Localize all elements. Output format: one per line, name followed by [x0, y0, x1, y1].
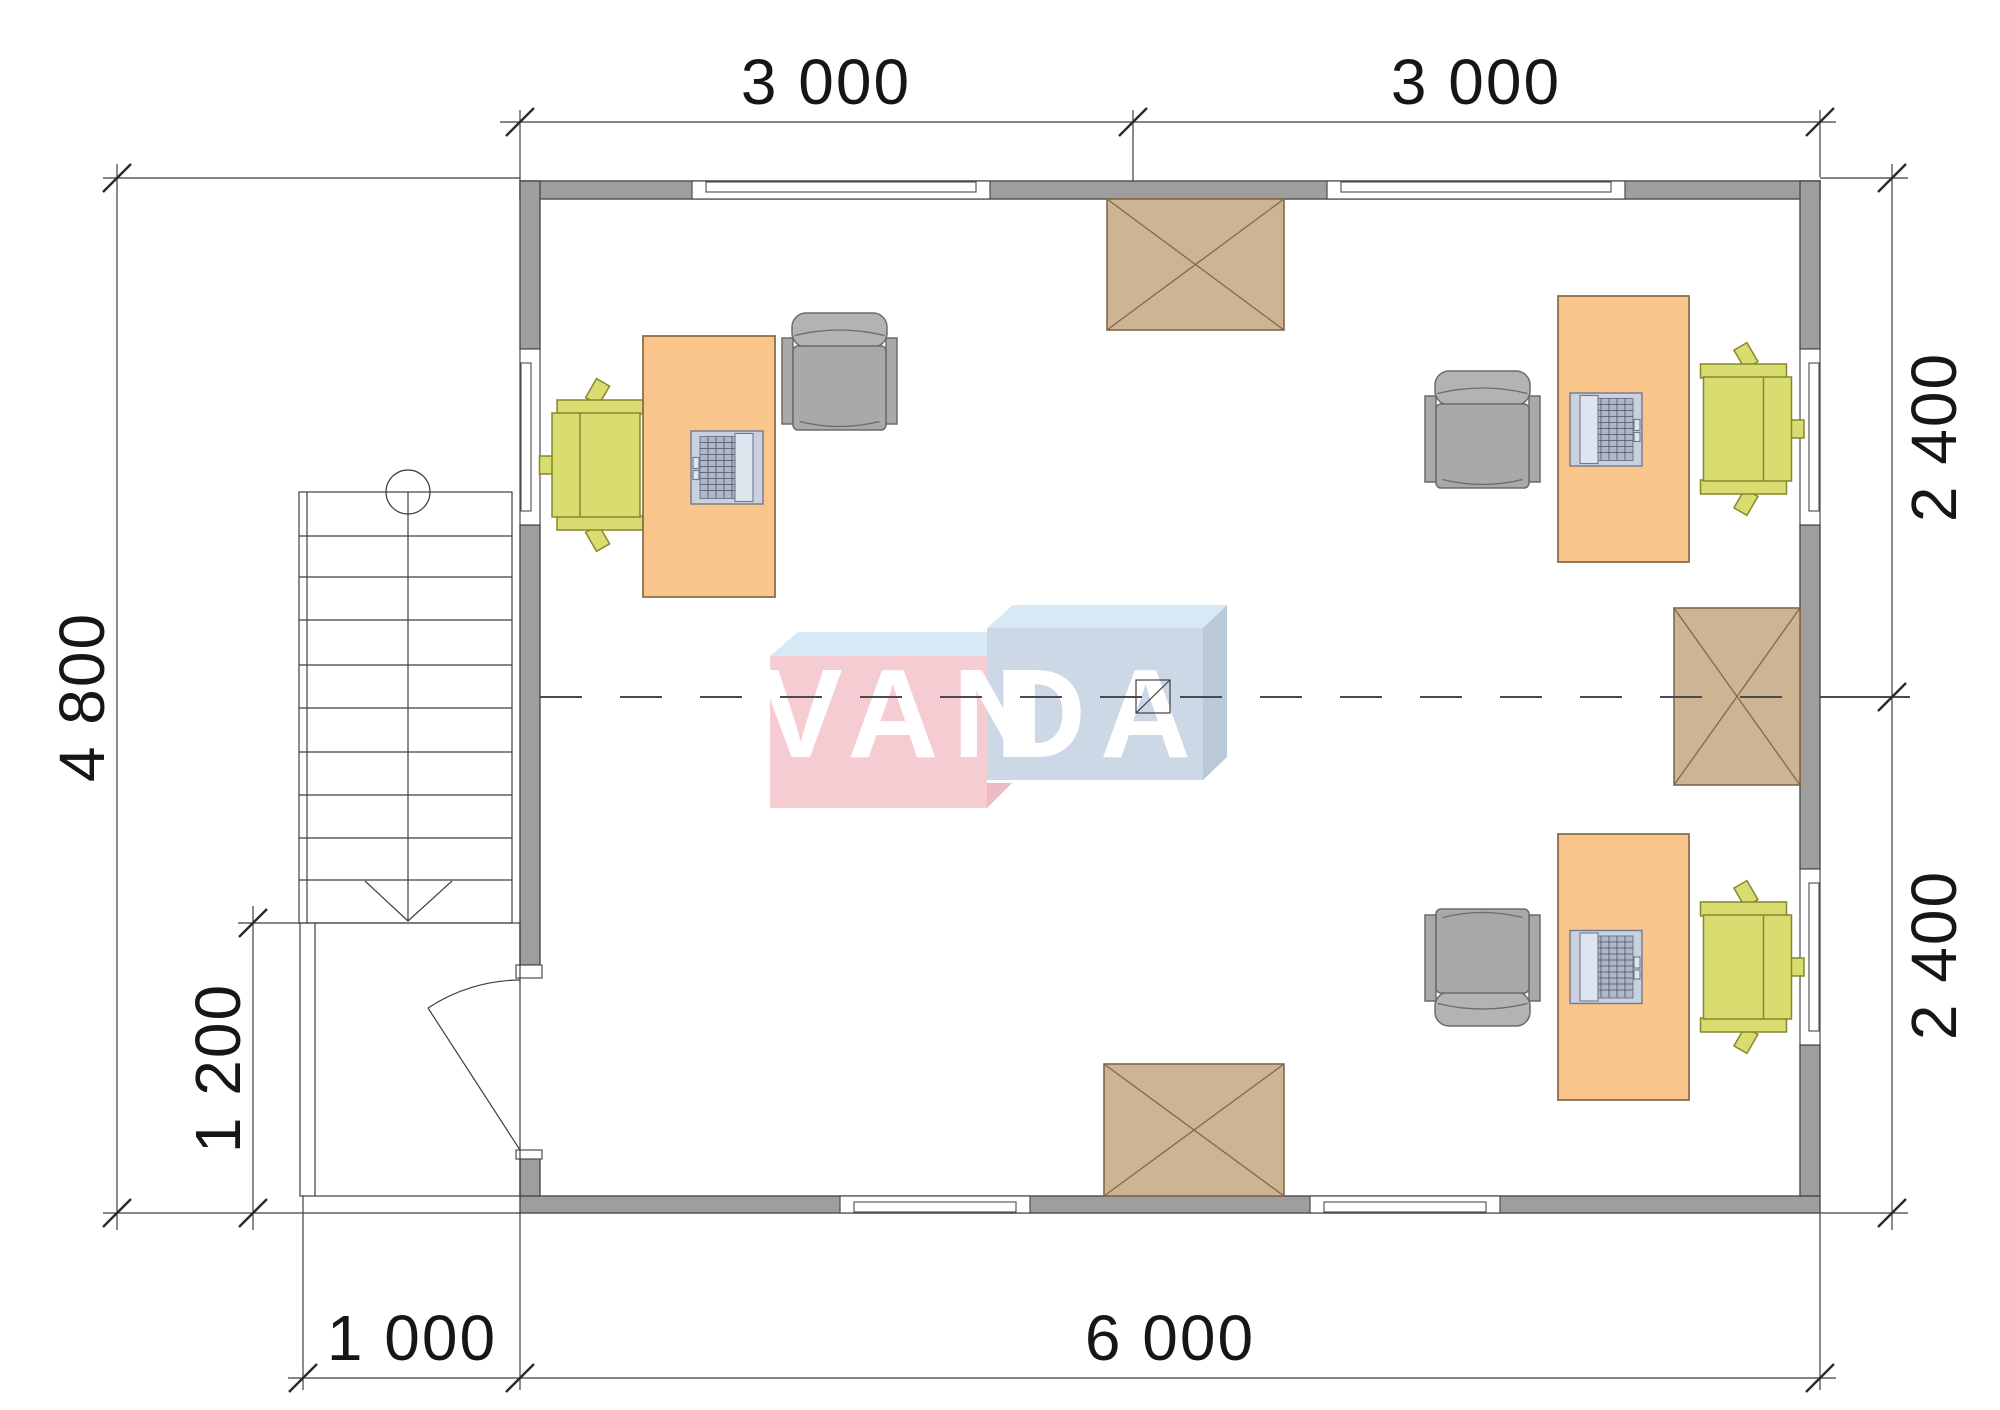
floor-plan-canvas: VAN DA	[0, 0, 2000, 1410]
workstation-3	[1425, 834, 1804, 1100]
laptop-3	[1570, 931, 1642, 1004]
dim-left: 4 800	[46, 164, 520, 1230]
crossed-box-top	[1107, 199, 1284, 330]
window-left	[520, 349, 540, 525]
armchair-1	[782, 313, 897, 430]
dim-bottom: 1 000 6 000	[288, 1196, 1836, 1392]
workstation-1	[540, 313, 898, 597]
armchair-2	[1425, 371, 1540, 488]
wall-left-upper	[520, 181, 540, 349]
task-chair-1	[540, 379, 644, 552]
porch	[300, 923, 520, 1196]
floor-plan-drawing: VAN DA	[0, 0, 2000, 1410]
task-chair-3	[1701, 881, 1805, 1054]
wall-left-lower	[520, 1157, 540, 1196]
wall-right-mid	[1800, 525, 1820, 869]
dim-label-porch-height: 1 200	[182, 983, 254, 1153]
window-top-left	[692, 181, 990, 199]
vanda-watermark: VAN DA	[759, 605, 1227, 808]
window-bottom-left	[840, 1196, 1030, 1213]
porch-outline	[300, 923, 520, 1196]
laptop-2	[1570, 393, 1642, 466]
task-chair-2	[1701, 343, 1805, 516]
window-top-right	[1327, 181, 1625, 199]
wall-left-mid	[520, 525, 540, 965]
crossed-box-bottom	[1104, 1064, 1284, 1196]
dim-label-top-right: 3 000	[1391, 46, 1561, 118]
staircase	[299, 470, 512, 923]
dim-ext-top	[520, 110, 1820, 181]
wall-bottom	[520, 1196, 1820, 1213]
wall-right-upper	[1800, 181, 1820, 349]
entrance-door	[428, 965, 542, 1159]
dim-label-right-upper: 2 400	[1898, 352, 1970, 522]
dim-label-right-lower: 2 400	[1898, 870, 1970, 1040]
dim-label-top-left: 3 000	[741, 46, 911, 118]
watermark-blue-top-face	[987, 605, 1227, 628]
window-bottom-right	[1310, 1196, 1500, 1213]
workstation-2	[1425, 296, 1804, 562]
armchair-3	[1425, 909, 1540, 1026]
dim-top: 3 000 3 000	[500, 46, 1836, 181]
stair-treads	[299, 536, 512, 880]
window-right-lower	[1800, 869, 1820, 1045]
watermark-text-da: DA	[995, 643, 1205, 784]
watermark-blue-side-face	[1203, 605, 1227, 780]
laptop-1	[691, 431, 763, 504]
entrance-door-swing	[428, 980, 520, 1008]
dim-label-bottom-porch: 1 000	[327, 1302, 497, 1374]
dim-ext-left	[103, 178, 520, 1213]
dim-label-bottom-total: 6 000	[1085, 1302, 1255, 1374]
watermark-pink-side-face	[987, 783, 1012, 808]
entrance-door-leaf	[428, 1008, 520, 1150]
dim-porch-height: 1 200	[182, 906, 300, 1230]
dim-ext-bottom	[303, 1196, 1820, 1390]
dim-label-left: 4 800	[46, 612, 118, 782]
wall-right-lower	[1800, 1045, 1820, 1196]
